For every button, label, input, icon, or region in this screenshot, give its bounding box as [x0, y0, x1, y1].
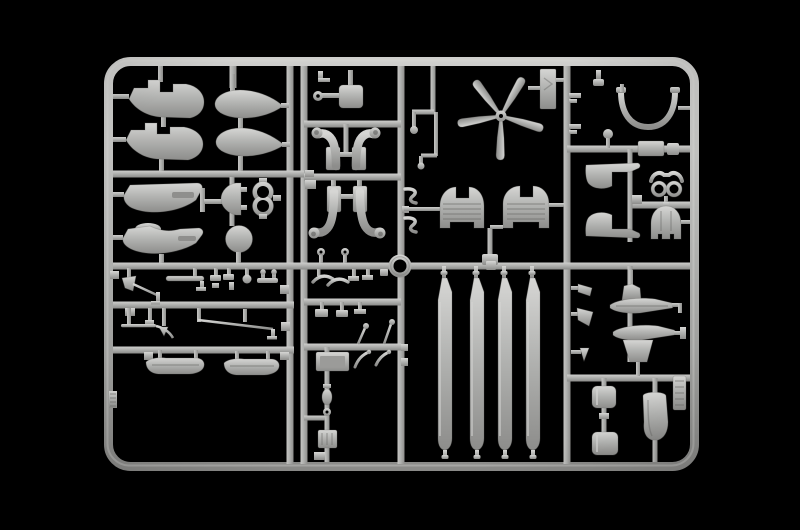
- sprue-photo: [0, 0, 800, 530]
- photo-of-model-sprue: [0, 0, 800, 530]
- vignette-overlay: [0, 0, 800, 530]
